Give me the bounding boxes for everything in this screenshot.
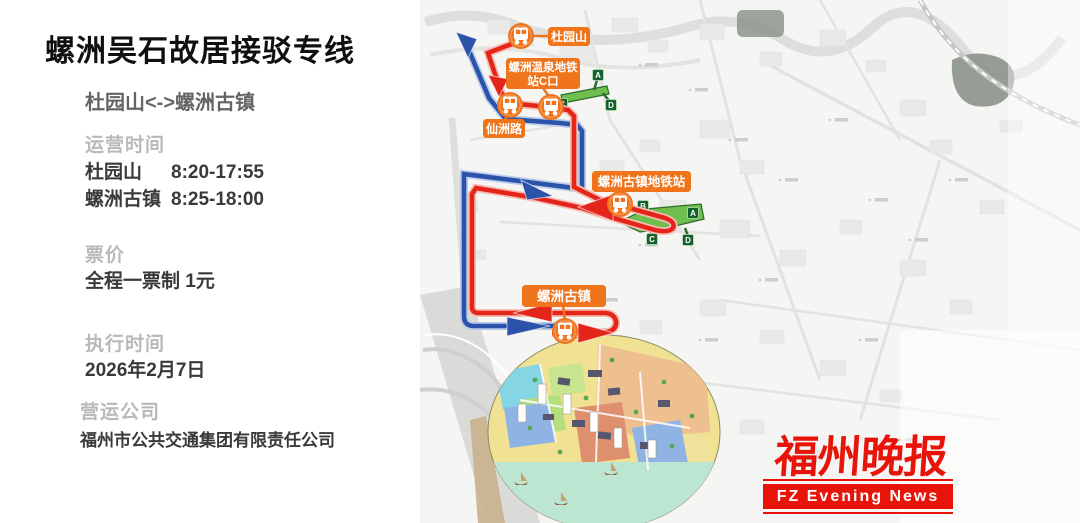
stop-label-wenquan-exit-c: 螺洲温泉地铁 站C口 — [506, 58, 580, 89]
schedule-row: 螺洲古镇8:25-18:00 — [85, 184, 264, 211]
newspaper-logo-cn: 福州晚报 — [765, 421, 957, 485]
transit-map: A C D B A C D — [420, 0, 1080, 523]
svg-text:螺洲古镇地铁站: 螺洲古镇地铁站 — [598, 174, 686, 189]
stop-label-xianzhoulu: 仙洲路 — [483, 119, 525, 138]
svg-text:A: A — [595, 71, 601, 80]
stop-label-duyuanshan: 杜园山 — [548, 27, 590, 46]
stop-label-guzhen-metro: 螺洲古镇地铁站 — [592, 171, 691, 192]
schedule-time: 8:20-17:55 — [171, 162, 264, 183]
svg-text:站C口: 站C口 — [527, 74, 558, 88]
page-title: 螺洲吴石故居接驳专线 — [45, 26, 355, 70]
svg-text:D: D — [608, 101, 614, 110]
newspaper-logo-en: FZ Evening News — [763, 484, 953, 509]
logo-rule — [763, 512, 953, 514]
stop-label-guzhen: 螺洲古镇 — [522, 285, 606, 307]
svg-text:仙洲路: 仙洲路 — [486, 121, 523, 136]
operator-label: 营运公司 — [80, 397, 160, 424]
schedule-row: 杜园山8:20-17:55 — [85, 157, 264, 184]
schedule-stop: 杜园山 — [85, 157, 171, 184]
effective-label: 执行时间 — [85, 329, 165, 356]
infographic: 螺洲吴石故居接驳专线 杜园山<->螺洲古镇 运营时间 杜园山8:20-17:55… — [0, 0, 1080, 523]
svg-text:C: C — [649, 235, 655, 244]
logo-rule — [763, 479, 953, 481]
fare-label: 票价 — [85, 240, 125, 267]
operator-value: 福州市公共交通集团有限责任公司 — [80, 426, 335, 451]
svg-text:A: A — [690, 209, 696, 218]
effective-value: 2026年2月7日 — [85, 355, 205, 382]
fare-value: 全程一票制 1元 — [85, 266, 215, 293]
svg-text:D: D — [685, 236, 691, 245]
svg-text:螺洲古镇: 螺洲古镇 — [537, 288, 591, 304]
schedule-time: 8:25-18:00 — [171, 189, 264, 210]
svg-text:杜园山: 杜园山 — [551, 29, 587, 44]
schedule-stop: 螺洲古镇 — [85, 184, 171, 211]
hours-label: 运营时间 — [85, 130, 165, 157]
route-endpoints: 杜园山<->螺洲古镇 — [85, 86, 255, 115]
svg-text:螺洲温泉地铁: 螺洲温泉地铁 — [509, 60, 578, 74]
